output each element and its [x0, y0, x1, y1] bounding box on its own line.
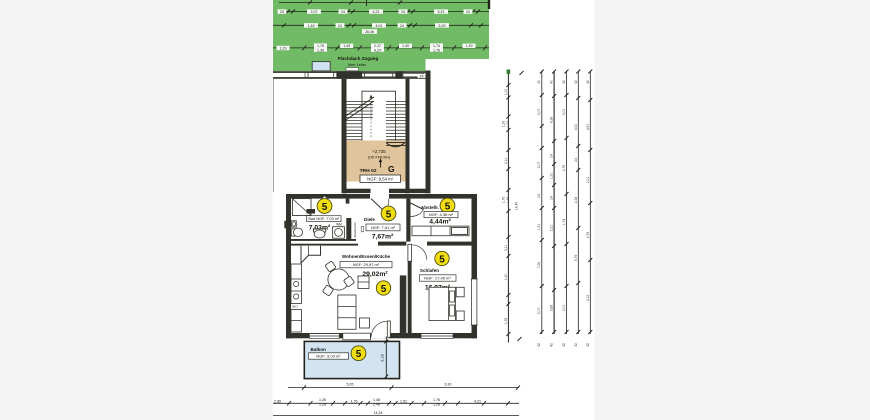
svg-text:7,67m²: 7,67m²	[372, 234, 394, 241]
svg-text:3,12: 3,12	[586, 295, 590, 302]
svg-text:5: 5	[356, 349, 362, 360]
svg-text:24: 24	[400, 24, 404, 28]
svg-text:6,30: 6,30	[445, 383, 452, 387]
svg-text:Flachdach Zugang: Flachdach Zugang	[338, 56, 379, 61]
svg-text:2,07: 2,07	[311, 10, 318, 14]
svg-text:Bad NGF: 7,03 m²: Bad NGF: 7,03 m²	[308, 217, 340, 221]
svg-text:2,86: 2,86	[274, 399, 281, 403]
svg-text:5: 5	[381, 284, 387, 295]
svg-text:26,46: 26,46	[365, 30, 374, 34]
svg-text:1,28: 1,28	[433, 402, 440, 406]
svg-text:2,37: 2,37	[374, 44, 381, 48]
svg-text:1,51: 1,51	[550, 173, 554, 180]
svg-text:7,26: 7,26	[537, 262, 541, 269]
svg-text:1,26: 1,26	[502, 121, 506, 128]
svg-text:24: 24	[338, 24, 342, 28]
svg-text:1,26: 1,26	[319, 398, 326, 402]
svg-text:NGF: 4,38 m²: NGF: 4,38 m²	[429, 212, 454, 217]
svg-text:42: 42	[574, 80, 578, 84]
svg-text:24: 24	[420, 74, 424, 78]
svg-text:2,79: 2,79	[562, 165, 566, 172]
svg-text:Schlafen: Schlafen	[420, 268, 439, 273]
svg-text:1,51: 1,51	[537, 224, 541, 231]
svg-text:4,51: 4,51	[586, 124, 590, 131]
svg-text:2,38: 2,38	[574, 197, 578, 204]
svg-text:2,48: 2,48	[373, 402, 380, 406]
svg-text:42: 42	[537, 343, 541, 347]
svg-text:4,24: 4,24	[374, 48, 381, 52]
svg-text:+2,735: +2,735	[372, 149, 386, 154]
svg-text:3,07: 3,07	[537, 109, 541, 116]
svg-text:40: 40	[550, 80, 554, 84]
svg-text:Abstellr.: Abstellr.	[421, 205, 439, 210]
svg-text:5,29: 5,29	[439, 24, 446, 28]
svg-text:42: 42	[586, 80, 590, 84]
svg-text:2,18: 2,18	[381, 354, 385, 361]
svg-text:1,51: 1,51	[400, 399, 407, 403]
svg-text:1,48: 1,48	[373, 398, 380, 402]
svg-text:Kleiderschr.: Kleiderschr.	[353, 222, 357, 238]
svg-text:24: 24	[466, 10, 470, 14]
svg-text:1,78: 1,78	[504, 318, 508, 325]
svg-text:3,01: 3,01	[562, 109, 566, 116]
svg-text:TRH 02: TRH 02	[360, 168, 377, 174]
svg-text:Balkon: Balkon	[311, 347, 327, 352]
svg-text:1,00: 1,00	[504, 89, 508, 96]
svg-text:NGF: 7,51 m²: NGF: 7,51 m²	[371, 225, 396, 230]
svg-text:1,20: 1,20	[504, 274, 508, 281]
svg-text:NGF: 9,03 m²: NGF: 9,03 m²	[316, 354, 341, 359]
svg-text:4,51: 4,51	[574, 124, 578, 131]
svg-text:4,01: 4,01	[376, 24, 383, 28]
svg-text:40: 40	[537, 80, 541, 84]
svg-text:7,03m²: 7,03m²	[309, 225, 331, 232]
svg-text:1,49: 1,49	[402, 44, 409, 48]
svg-text:5,07: 5,07	[537, 308, 541, 315]
svg-text:42: 42	[574, 343, 578, 347]
svg-text:24: 24	[537, 194, 541, 198]
svg-text:WM: WM	[336, 223, 342, 227]
svg-text:24: 24	[550, 196, 554, 200]
svg-text:Diele: Diele	[364, 217, 375, 222]
svg-text:5,21: 5,21	[438, 10, 445, 14]
svg-text:5: 5	[386, 209, 392, 220]
svg-text:5: 5	[445, 201, 451, 212]
svg-text:1,74: 1,74	[562, 219, 566, 226]
svg-text:B/O: B/O	[292, 305, 298, 309]
svg-text:NGF: 29,97 m²: NGF: 29,97 m²	[353, 262, 380, 267]
svg-text:24: 24	[550, 154, 554, 158]
svg-text:14,49: 14,49	[515, 202, 519, 211]
svg-text:3,11: 3,11	[504, 245, 508, 251]
svg-text:1,76: 1,76	[317, 44, 324, 48]
svg-text:NGF: 9,54 m²: NGF: 9,54 m²	[367, 176, 394, 181]
svg-text:2,21: 2,21	[550, 225, 554, 232]
svg-text:Wohnen/Essen/Küche: Wohnen/Essen/Küche	[342, 254, 391, 259]
svg-text:4,21: 4,21	[373, 10, 380, 14]
svg-text:1,49: 1,49	[466, 44, 473, 48]
svg-text:42: 42	[586, 343, 590, 347]
svg-text:NGF: 17,45 m²: NGF: 17,45 m²	[424, 276, 451, 281]
svg-text:1,49: 1,49	[343, 44, 350, 48]
svg-text:14,24: 14,24	[374, 411, 383, 415]
svg-text:1,76: 1,76	[433, 48, 440, 52]
svg-text:über Leiter: über Leiter	[348, 63, 367, 67]
svg-text:1,36: 1,36	[317, 48, 324, 52]
svg-text:5: 5	[439, 254, 445, 265]
svg-text:2,01: 2,01	[586, 177, 590, 184]
svg-text:24: 24	[401, 10, 405, 14]
svg-text:4,21: 4,21	[474, 399, 481, 403]
svg-text:24: 24	[574, 158, 578, 162]
svg-text:2,79: 2,79	[586, 232, 590, 239]
svg-text:42: 42	[562, 343, 566, 347]
svg-text:1,29: 1,29	[280, 46, 287, 50]
svg-text:1,32: 1,32	[506, 121, 510, 128]
svg-text:4,44m²: 4,44m²	[429, 219, 451, 226]
svg-text:3,89: 3,89	[550, 305, 554, 312]
svg-text:9,79: 9,79	[574, 255, 578, 262]
svg-text:5: 5	[322, 202, 328, 213]
svg-text:1,74: 1,74	[433, 44, 440, 48]
svg-text:2,07: 2,07	[537, 162, 541, 169]
svg-text:1,36: 1,36	[506, 197, 510, 204]
svg-text:2,11: 2,11	[504, 158, 508, 164]
svg-text:24: 24	[280, 10, 284, 14]
svg-text:24: 24	[341, 10, 345, 14]
svg-text:1,76: 1,76	[502, 197, 506, 204]
svg-text:3,01: 3,01	[562, 305, 566, 312]
svg-text:1,76: 1,76	[351, 399, 358, 403]
svg-text:(OK FFB RH): (OK FFB RH)	[368, 156, 390, 160]
svg-text:1,28: 1,28	[319, 402, 326, 406]
svg-text:1,49: 1,49	[308, 24, 315, 28]
svg-text:G: G	[388, 164, 395, 174]
svg-text:5,05: 5,05	[347, 383, 354, 387]
svg-text:4,38: 4,38	[550, 117, 554, 124]
svg-text:42: 42	[550, 343, 554, 347]
svg-text:1,76: 1,76	[433, 398, 440, 402]
svg-text:42: 42	[562, 80, 566, 84]
